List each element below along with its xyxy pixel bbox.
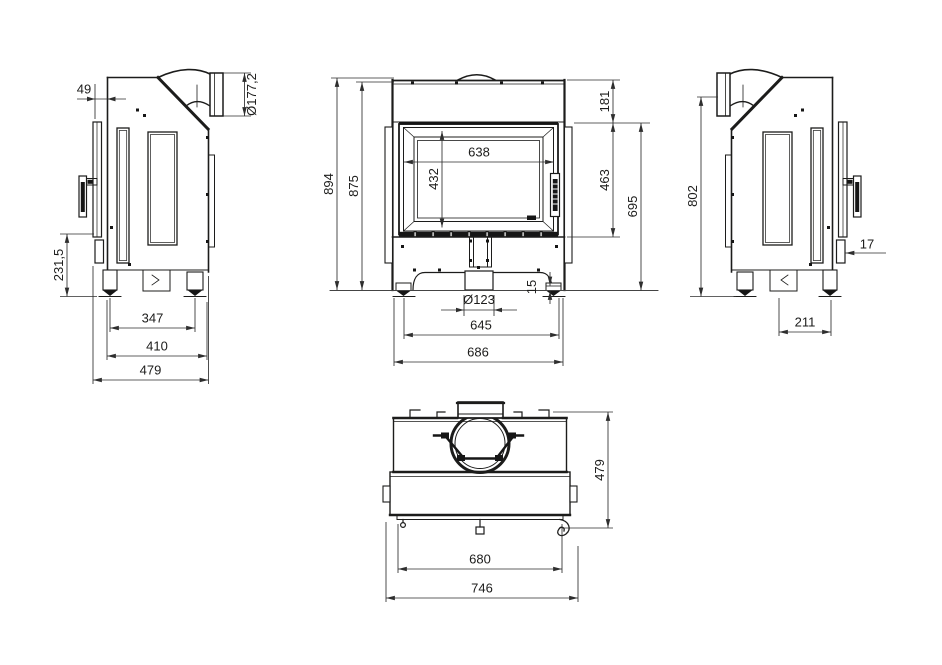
dim-label-top-overall-width: 746 — [471, 581, 493, 596]
left-hook — [401, 523, 406, 528]
dim-label-front-feet-spacing: 645 — [470, 318, 492, 333]
base-center-box — [143, 270, 170, 291]
dim-label-top-body-width: 680 — [469, 552, 491, 567]
dim-label-glass-height: 432 — [426, 168, 441, 190]
cold-handle-hook — [558, 520, 569, 536]
front-right-foot — [546, 283, 561, 291]
flue-stub — [458, 402, 503, 418]
dim-left-front-offset: 49 — [77, 82, 126, 120]
flue-elbow-outer — [158, 70, 210, 78]
air-inlet — [465, 271, 493, 290]
right-side-flange — [565, 127, 573, 263]
dim-label-left-overall-depth: 479 — [140, 363, 162, 378]
dim-label-flue-diameter: Ø177,2 — [244, 73, 259, 116]
dim-label-front-overall-width: 686 — [467, 345, 489, 360]
flue-collar-outer — [451, 415, 509, 473]
flue-outlet-cap — [210, 73, 223, 116]
dim-label-air-inlet: Ø123 — [463, 292, 495, 307]
dim-label-base-depth: 410 — [146, 339, 168, 354]
dim-label-front-offset: 49 — [77, 82, 91, 97]
top-right-tab — [570, 486, 577, 502]
dim-door-bottom-to-floor: 695 — [625, 123, 641, 291]
dim-top-overall-depth: 479 — [553, 412, 613, 528]
door-handle-grip — [81, 182, 85, 212]
fireplace-dimension-drawing: 49 Ø177,2 231,5 347 410 479 — [0, 0, 942, 665]
dim-left-lower-height: 231,5 — [51, 234, 97, 297]
vent-slot-front — [117, 128, 129, 263]
dim-label-body-height: 875 — [346, 175, 361, 197]
body-slanted-top — [158, 78, 208, 130]
dim-label-door-bottom-to-floor: 695 — [625, 196, 640, 218]
flue-top-arc — [458, 75, 495, 80]
dim-left-feet-spacing: 347 — [110, 298, 195, 332]
dim-air-inlet: Ø123 — [441, 292, 517, 316]
base-screws — [401, 245, 558, 272]
dim-door-height: 463 — [567, 123, 620, 237]
dim-label-frame-flange: 17 — [860, 237, 874, 252]
front-left-foot-pad — [396, 291, 411, 297]
vent-slot-rear — [148, 132, 177, 245]
dim-hood-height: 181 — [567, 80, 650, 123]
dim-right-frame-flange: 17 — [846, 237, 887, 254]
top-back-section — [394, 418, 567, 472]
dim-label-overall-height: 894 — [321, 173, 336, 195]
dim-left-base-depth: 410 — [107, 300, 207, 360]
dim-label-foot-offset: 211 — [795, 315, 816, 330]
glass-lock-mark — [527, 216, 536, 221]
top-front-section — [390, 472, 570, 515]
dim-label-door-height: 463 — [597, 169, 612, 191]
door-top-band — [399, 122, 558, 125]
technical-drawing-canvas: 49 Ø177,2 231,5 347 410 479 — [0, 0, 942, 665]
front-right-foot-pad — [546, 291, 561, 297]
dim-left-flue-diameter: Ø177,2 — [224, 73, 260, 116]
dim-right-foot-offset: 211 — [779, 298, 831, 336]
right-side-view-body — [717, 70, 861, 297]
top-left-tab — [383, 486, 390, 502]
flue-elbow-inner — [186, 101, 210, 106]
dim-label-rear-height: 802 — [685, 185, 700, 207]
rear-foot-pad — [188, 291, 202, 297]
dim-label-foot-height: 15 — [524, 280, 539, 294]
center-latch — [476, 527, 484, 534]
handle-mount-pin — [88, 180, 93, 184]
dim-label-glass-width: 638 — [468, 145, 490, 160]
rear-flange — [209, 155, 215, 247]
top-view-body — [383, 402, 577, 536]
dim-top-body-width: 680 — [398, 524, 562, 573]
dim-label-top-overall-depth: 479 — [592, 459, 607, 481]
door-bottom-band — [399, 232, 558, 237]
lower-front-strip — [95, 240, 104, 263]
dim-label-hood-height: 181 — [597, 91, 612, 113]
rear-foot — [187, 272, 203, 290]
dim-label-left-feet-spacing: 347 — [142, 311, 164, 326]
left-side-view-body — [79, 70, 223, 297]
front-left-foot — [396, 283, 411, 291]
dim-label-lower-height: 231,5 — [51, 249, 66, 282]
left-side-flange — [385, 127, 393, 263]
front-foot-pad — [103, 291, 117, 297]
dim-right-rear-height: 802 — [685, 97, 736, 297]
front-foot — [103, 270, 117, 290]
channel-screws — [469, 240, 489, 263]
